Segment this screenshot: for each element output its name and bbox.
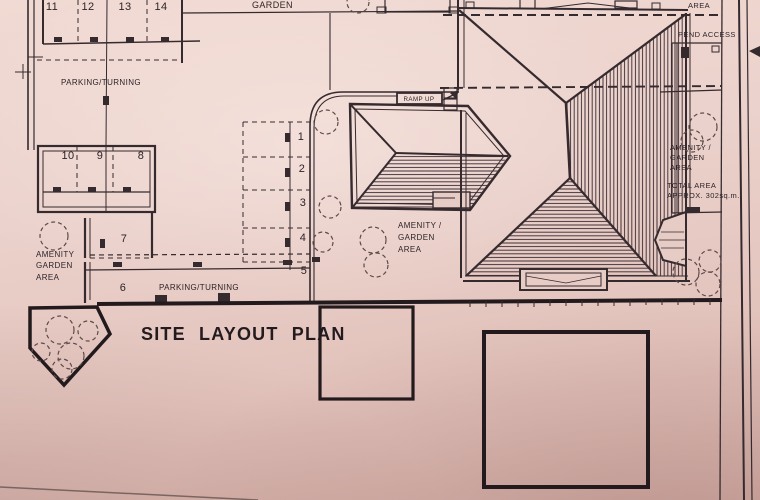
area-top-right-label: AREA xyxy=(688,1,710,10)
bay-6-label: 6 xyxy=(120,282,127,294)
pend-access-label: PEND ACCESS xyxy=(678,30,736,39)
bay-2-label: 2 xyxy=(299,163,306,175)
tree-icon xyxy=(314,110,338,134)
plot-square-right xyxy=(484,332,648,487)
bay-11-label: 11 xyxy=(46,1,58,13)
total-area-line1: TOTAL AREA xyxy=(667,181,716,190)
bay-3-label: 3 xyxy=(300,197,307,209)
bay-7-label: 7 xyxy=(121,233,128,245)
parking-turning-strip: 6 PARKING/TURNING xyxy=(85,254,320,303)
parking-turning-lower-label: PARKING/TURNING xyxy=(159,283,239,292)
parking-bay-7: 7 xyxy=(85,218,152,258)
amenity-center-line2: GARDEN xyxy=(398,233,435,242)
bay-8-label: 8 xyxy=(138,150,145,162)
parking-block-w: 10 9 8 xyxy=(38,146,155,258)
bay-13-label: 13 xyxy=(118,1,131,13)
amenity-left-line3: AREA xyxy=(36,273,60,282)
plan-title: SITE LAYOUT PLAN xyxy=(141,324,346,344)
amenity-center-line1: AMENITY / xyxy=(398,221,442,230)
site-plan-photo: 11 12 13 14 PARKING/TURNING GARDEN 10 9 … xyxy=(0,0,760,500)
plot-square-left xyxy=(320,307,413,399)
tree-icon xyxy=(347,0,369,13)
tree-icon xyxy=(696,272,720,296)
total-area-line2: APPROX. 302sq.m. xyxy=(667,191,740,200)
amenity-right-line3: AREA xyxy=(670,163,692,172)
tree-icon xyxy=(46,316,74,344)
tree-icon xyxy=(78,321,98,341)
tree-icon xyxy=(319,196,341,218)
bay-5-label: 5 xyxy=(301,265,308,277)
paper-crease xyxy=(0,487,258,500)
bay-14-label: 14 xyxy=(154,1,167,13)
ramp-up-label: RAMP UP xyxy=(404,96,435,103)
lower-plot-squares xyxy=(320,307,648,487)
garden-top-label: GARDEN xyxy=(252,0,293,10)
amenity-left-line2: GARDEN xyxy=(36,261,73,270)
tree-icon xyxy=(313,232,333,252)
access-arrow-icon xyxy=(749,46,760,57)
amenity-garden-left: AMENITY GARDEN AREA xyxy=(36,222,75,282)
amenity-right-line2: GARDEN xyxy=(670,153,705,162)
tree-icon xyxy=(40,222,68,250)
bay-10-label: 10 xyxy=(61,150,74,162)
amenity-right-line1: AMENITY / xyxy=(670,143,711,152)
garden-strip-top: GARDEN xyxy=(182,0,458,13)
site-plan-drawing: 11 12 13 14 PARKING/TURNING GARDEN 10 9 … xyxy=(0,0,760,500)
bay-4-label: 4 xyxy=(300,232,307,244)
tree-icon xyxy=(364,253,388,277)
tree-icon xyxy=(360,227,386,253)
tree-icon xyxy=(689,113,717,141)
bay-12-label: 12 xyxy=(81,1,94,13)
garage-building xyxy=(350,104,510,210)
amenity-left-line1: AMENITY xyxy=(36,250,75,259)
corner-plot-sw xyxy=(30,307,110,385)
amenity-center-line3: AREA xyxy=(398,245,422,254)
tree-icon xyxy=(699,250,721,272)
bay-9-label: 9 xyxy=(97,150,104,162)
bay-1-label: 1 xyxy=(298,131,305,143)
parking-block-nw: 11 12 13 14 PARKING/TURNING xyxy=(15,0,200,150)
parking-turning-upper-label: PARKING/TURNING xyxy=(61,78,141,87)
